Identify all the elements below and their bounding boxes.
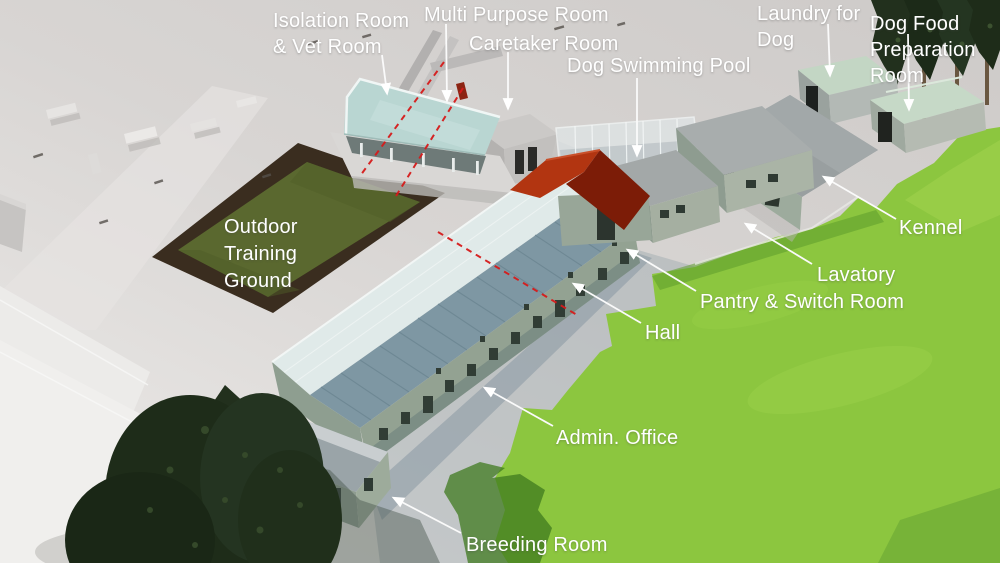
arrow-to-multi-purpose xyxy=(446,24,447,100)
screenshot-root: Isolation Room & Vet Room Multi Purpose … xyxy=(0,0,1000,563)
arrow-to-dog-food-prep xyxy=(908,34,909,109)
site-3d-render xyxy=(0,0,1000,563)
